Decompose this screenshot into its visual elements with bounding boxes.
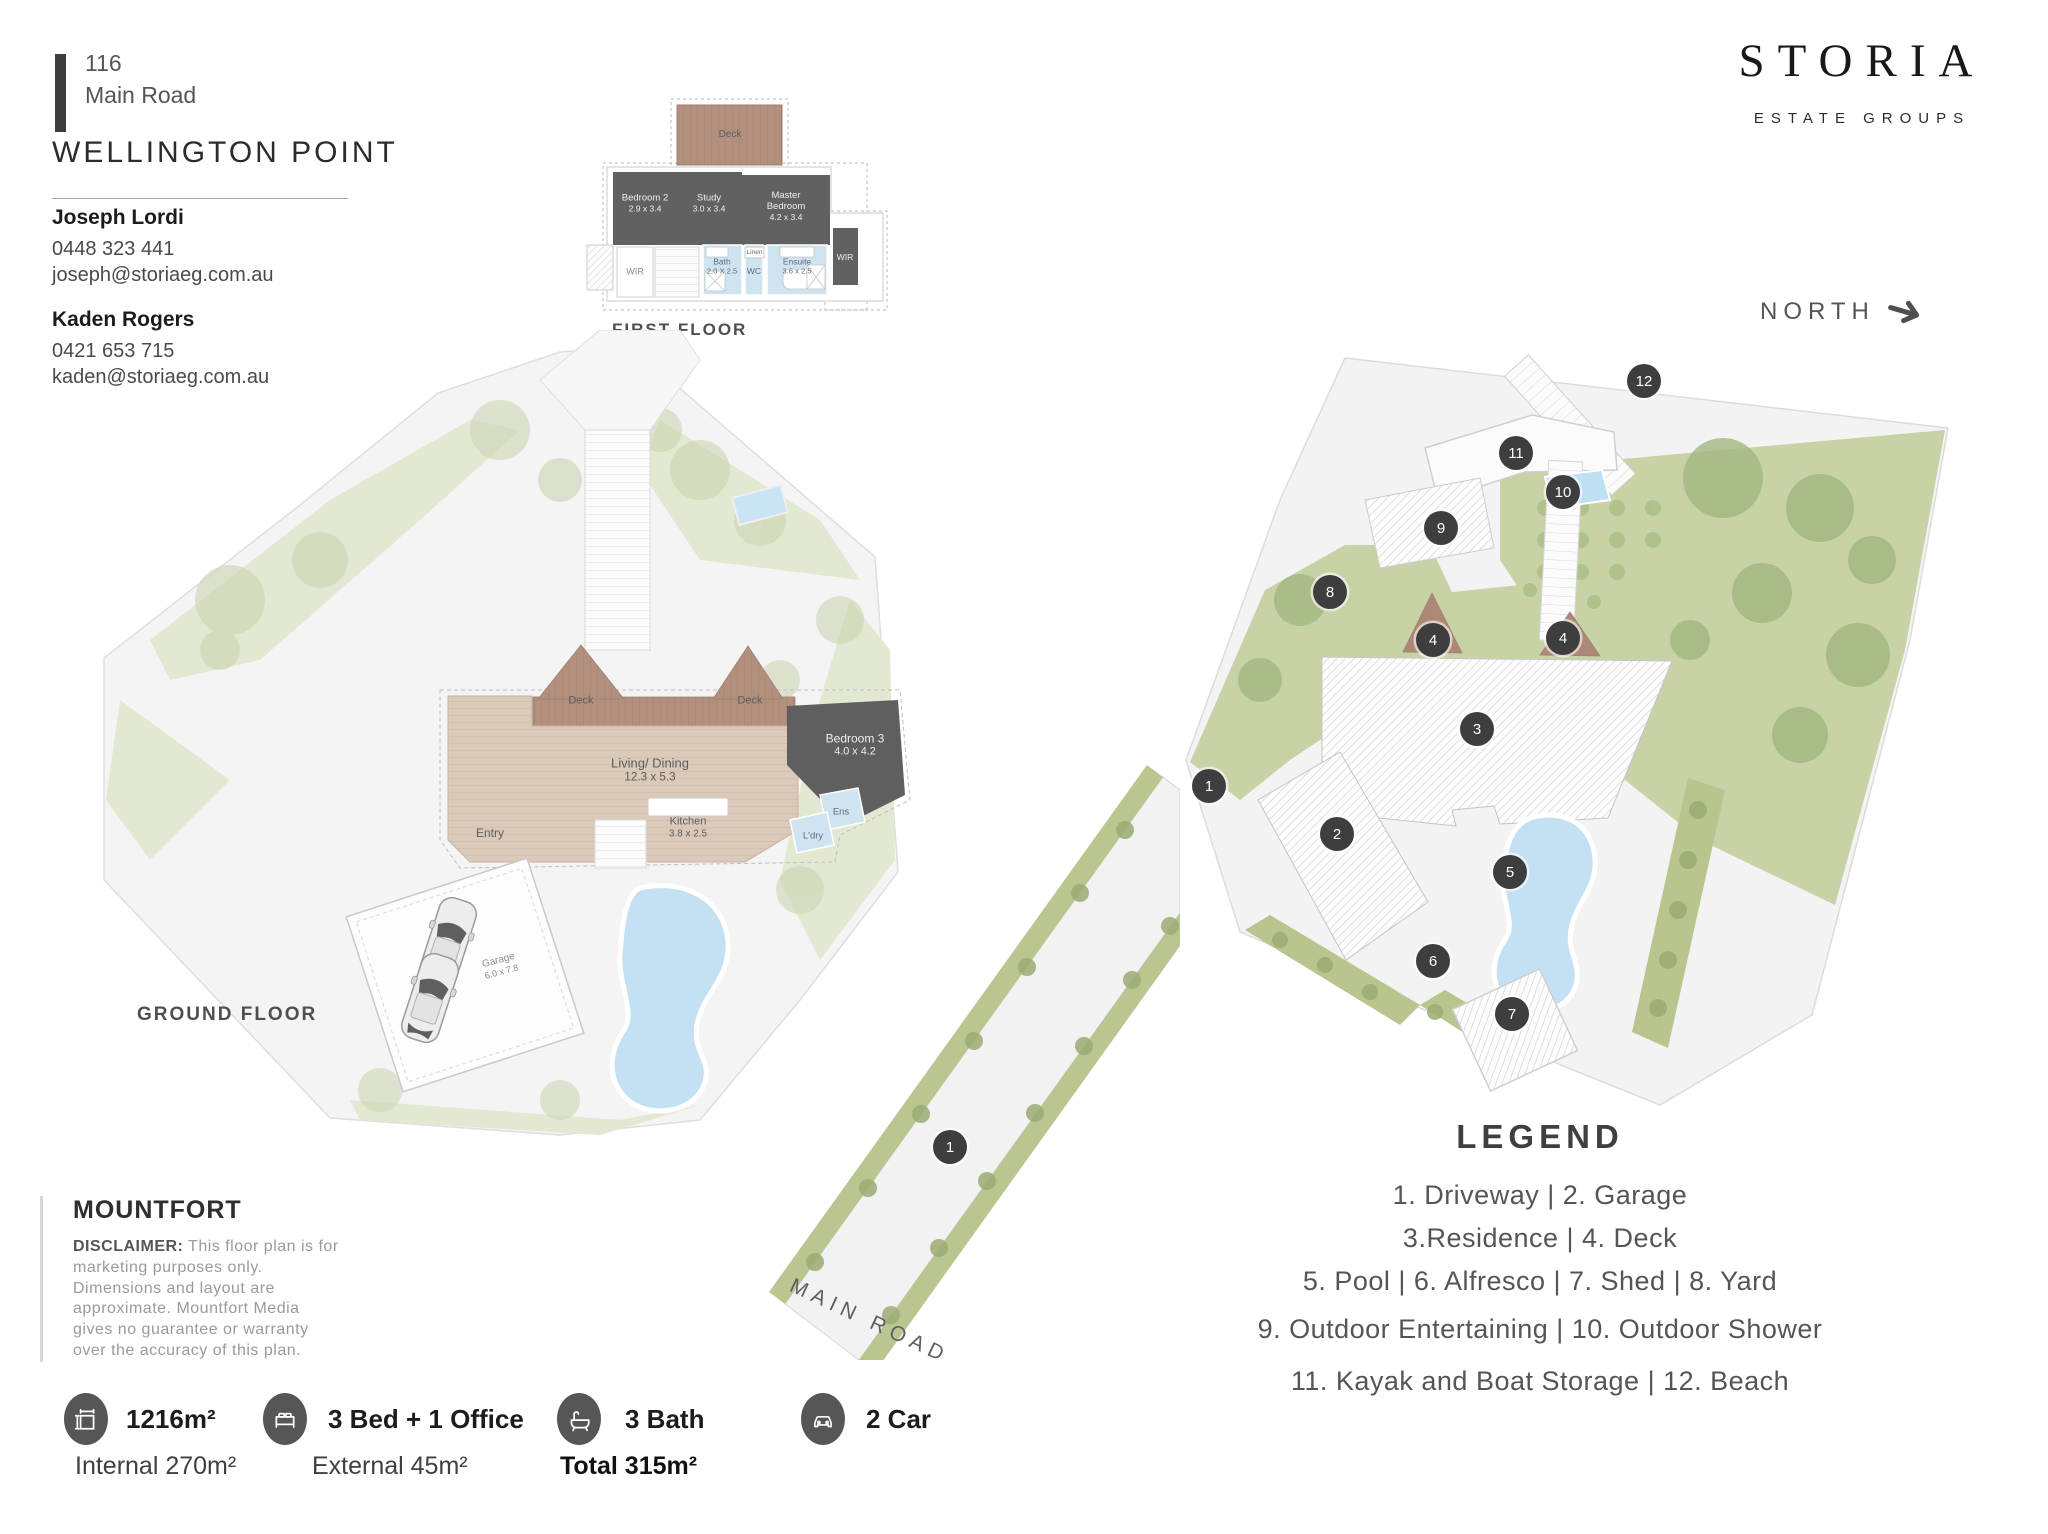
marker-outdoor-entertaining: 9	[1424, 511, 1458, 545]
room-name: Bedroom 3	[826, 732, 885, 746]
first-floor-stairs	[655, 247, 699, 297]
room-dim: 2.0 X 2.5	[707, 266, 738, 275]
room-name: Bath	[707, 256, 738, 266]
stat-beds: 3 Bed + 1 Office	[328, 1404, 524, 1435]
brand-tagline: ESTATE GROUPS	[1728, 110, 1996, 127]
stat-land-area: 1216m²	[126, 1404, 216, 1435]
room-name: Bedroom 2	[622, 192, 668, 203]
legend-line-5: 11. Kayak and Boat Storage | 12. Beach	[1150, 1366, 1930, 1397]
label-wir-right: WIR	[837, 252, 854, 262]
stat-baths: 3 Bath	[625, 1404, 704, 1435]
marker-garage: 2	[1320, 817, 1354, 851]
label-deck-left: Deck	[568, 695, 593, 708]
legend-line-2: 3.Residence | 4. Deck	[1150, 1223, 1930, 1254]
marker-kayak-storage: 11	[1499, 436, 1533, 470]
label-study: Study 3.0 x 3.4	[693, 192, 726, 213]
legend-line-4: 9. Outdoor Entertaining | 10. Outdoor Sh…	[1150, 1314, 1930, 1345]
room-name: Kitchen	[669, 816, 707, 829]
agent-1-name: Joseph Lordi	[52, 206, 184, 230]
marker-shed: 7	[1495, 997, 1529, 1031]
room-name: Study	[693, 192, 726, 203]
brand-logo: STORIA	[1728, 34, 1996, 88]
suburb-title: WELLINGTON POINT	[52, 136, 398, 170]
legend: LEGEND 1. Driveway | 2. Garage 3.Residen…	[1150, 1118, 1930, 1397]
label-living-dining: Living/ Dining 12.3 x 5.3	[611, 755, 689, 784]
agent-1-phone: 0448 323 441	[52, 238, 174, 261]
area-icon	[64, 1393, 108, 1445]
car-icon	[801, 1393, 845, 1445]
disclaimer-block: MOUNTFORT DISCLAIMER: This floor plan is…	[40, 1196, 339, 1362]
kitchen-island	[648, 798, 728, 816]
marker-pool: 5	[1493, 855, 1527, 889]
label-ens: Ens	[833, 806, 849, 817]
marker-outdoor-shower: 10	[1546, 475, 1580, 509]
north-indicator: NORTH	[1760, 298, 1925, 326]
stat-total: Total 315m²	[560, 1452, 697, 1481]
label-wir-left: WIR	[626, 267, 644, 278]
site-overview-plan	[1180, 340, 1950, 1130]
label-ldry: L'dry	[803, 830, 823, 841]
disclaimer-text: DISCLAIMER: This floor plan is for marke…	[73, 1237, 339, 1362]
label-deck-right: Deck	[737, 695, 762, 708]
label-master-bedroom: Master Bedroom 4.2 x 3.4	[755, 190, 817, 222]
legend-line-1: 1. Driveway | 2. Garage	[1150, 1180, 1930, 1211]
room-dim: 12.3 x 5.3	[611, 771, 689, 785]
label-ensuite: Ensuite 3.6 x 2.5	[782, 256, 811, 275]
bath-icon	[557, 1393, 601, 1445]
label-bath: Bath 2.0 X 2.5	[707, 256, 738, 275]
floorplan-page: 116 Main Road WELLINGTON POINT Joseph Lo…	[0, 0, 2048, 1534]
label-bedroom3: Bedroom 3 4.0 x 4.2	[826, 732, 885, 759]
marker-deck-left: 4	[1416, 623, 1450, 657]
room-name: Master Bedroom	[755, 190, 817, 212]
balcony-left	[587, 245, 613, 290]
marker-deck-right: 4	[1546, 621, 1580, 655]
street-name: Main Road	[85, 82, 196, 109]
legend-title: LEGEND	[1150, 1118, 1930, 1156]
legend-line-3: 5. Pool | 6. Alfresco | 7. Shed | 8. Yar…	[1150, 1266, 1930, 1297]
stat-cars: 2 Car	[866, 1404, 931, 1435]
north-arrow-icon	[1884, 293, 1928, 330]
external-stairs	[585, 430, 650, 650]
room-dim: 2.9 x 3.4	[622, 204, 668, 214]
marker-beach: 12	[1627, 364, 1661, 398]
room-name: Ensuite	[782, 256, 811, 266]
label-bedroom2: Bedroom 2 2.9 x 3.4	[622, 192, 668, 213]
label-kitchen: Kitchen 3.8 x 2.5	[669, 816, 707, 841]
marker-driveway: 1	[1192, 769, 1226, 803]
label-entry: Entry	[476, 826, 504, 840]
room-dim: 3.0 x 3.4	[693, 204, 726, 214]
agent-1-email: joseph@storiaeg.com.au	[52, 264, 274, 287]
stat-internal: Internal 270m²	[75, 1452, 236, 1481]
marker-yard: 8	[1313, 575, 1347, 609]
north-label: NORTH	[1760, 298, 1875, 326]
bed-icon	[263, 1393, 307, 1445]
room-name: Living/ Dining	[611, 755, 689, 770]
internal-stairs	[595, 820, 646, 868]
room-dim: 3.6 x 2.5	[782, 266, 811, 275]
marker-residence: 3	[1460, 712, 1494, 746]
room-dim: 4.2 x 3.4	[755, 212, 817, 222]
label-ff-deck: Deck	[719, 129, 742, 141]
address-accent-bar	[55, 54, 66, 132]
agent-2-name: Kaden Rogers	[52, 308, 194, 332]
marker-driveway-road: 1	[933, 1130, 967, 1164]
disclaimer-body: This floor plan is for marketing purpose…	[73, 1238, 339, 1359]
header-divider	[52, 198, 348, 199]
street-number: 116	[85, 50, 122, 77]
room-dim: 4.0 x 4.2	[826, 746, 885, 759]
room-dim: 3.8 x 2.5	[669, 829, 707, 841]
label-linen: Linen	[747, 249, 763, 257]
stat-external: External 45m²	[312, 1452, 468, 1481]
disclaimer-brand: MOUNTFORT	[73, 1196, 339, 1225]
disclaimer-label: DISCLAIMER:	[73, 1238, 183, 1255]
ground-floor-title: GROUND FLOOR	[137, 1004, 317, 1026]
marker-alfresco: 6	[1416, 944, 1450, 978]
label-wc: WC	[747, 266, 761, 276]
